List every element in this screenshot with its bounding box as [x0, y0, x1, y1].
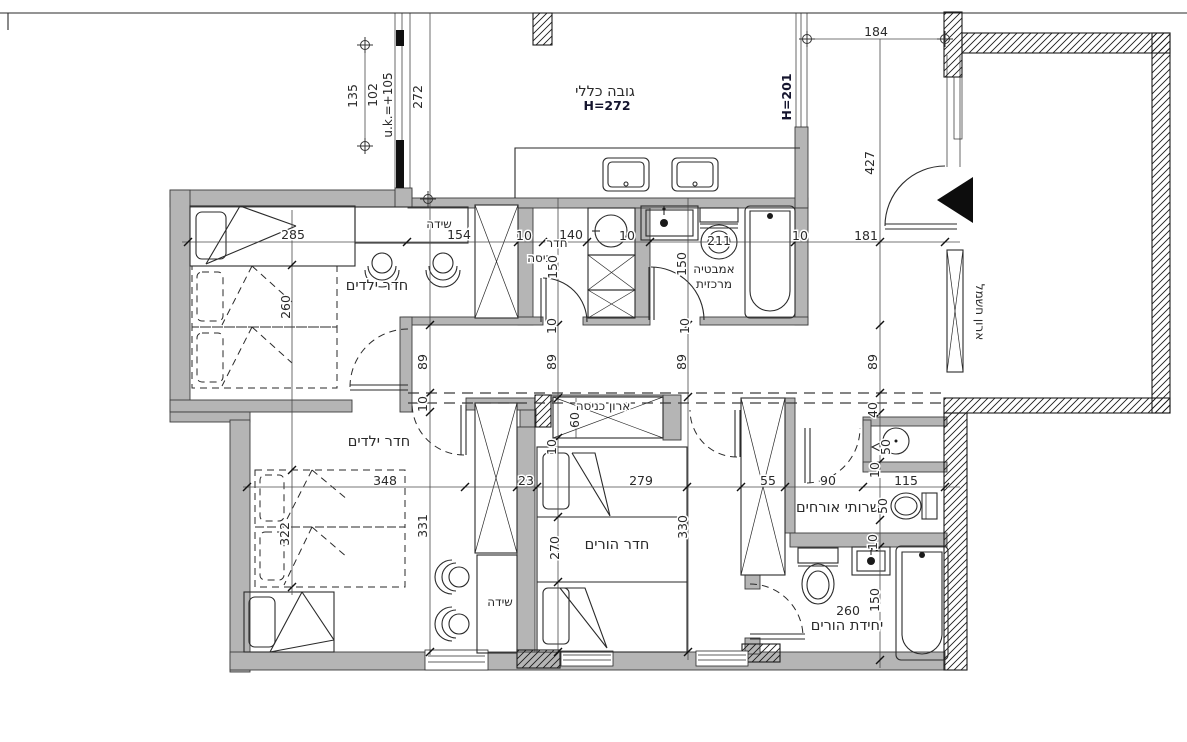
dim-23: 23: [518, 473, 534, 488]
laundry-cabinet: [588, 255, 635, 318]
label-entry-closet: ארון כניסה: [576, 399, 631, 413]
label-parents-room: חדר הורים: [585, 537, 650, 553]
door-ensuite: [750, 584, 805, 639]
window-right: [796, 13, 807, 127]
dim-181: 181: [854, 228, 878, 243]
ensuite-bathtub: [896, 546, 948, 660]
dim-89-a: 89: [415, 354, 430, 370]
dim-285: 285: [281, 227, 305, 242]
dim-154: 154: [447, 227, 471, 242]
door-laundry: [541, 278, 587, 322]
window-bottom-parents-1: [561, 651, 613, 666]
window-bottom-parents-2: [696, 651, 748, 666]
guest-wc-toilet: [891, 493, 937, 519]
dim-40: 40: [865, 402, 880, 418]
dim-331: 331: [415, 514, 430, 538]
label-bath-line1: אמבטיה: [693, 262, 734, 276]
window-left: [395, 13, 410, 188]
bed-kids2-solid: [244, 592, 334, 652]
wardrobe-kids1: [475, 205, 518, 318]
label-dresser-bottom: שידה: [487, 595, 513, 609]
dim-102: 102: [365, 83, 380, 107]
dim-10-f: 10: [677, 318, 692, 334]
dim-10-a: 10: [516, 228, 532, 243]
bed-kids1-dashed-1: [192, 266, 337, 327]
sheet-border: [0, 13, 1187, 30]
dim-427: 427: [862, 151, 877, 175]
door-parents: [690, 410, 740, 457]
dim-50-b: 50: [875, 498, 890, 514]
wardrobe-kids2: [475, 403, 517, 553]
label-general-height-value: H=272: [583, 98, 630, 113]
dim-90: 90: [820, 473, 836, 488]
label-kids-room-1: חדר ילדים: [346, 278, 408, 294]
dim-10-g: 10: [544, 439, 559, 455]
dim-89-c: 89: [674, 354, 689, 370]
dim-55: 55: [760, 473, 776, 488]
label-parents-unit: יחידת הורים: [811, 618, 884, 634]
label-electric-cabinet: ארון חשמל: [973, 284, 987, 340]
door-entry: [885, 166, 973, 229]
dim-150-bath: 150: [674, 252, 689, 276]
dim-60: 60: [567, 412, 582, 428]
dim-89-d: 89: [865, 354, 880, 370]
dim-150-laundry: 150: [545, 255, 560, 279]
dim-10-b: 10: [619, 228, 635, 243]
label-bath-line2: מרכזית: [696, 277, 732, 291]
dim-89-b: 89: [544, 354, 559, 370]
dim-184: 184: [864, 24, 888, 39]
dim-10-h: 10: [867, 462, 882, 478]
dim-348: 348: [373, 473, 397, 488]
bathroom-bathtub: [745, 206, 795, 318]
floor-plan-canvas: גובה כללי H=272 H=201 u.k.=+105 חדר ילדי…: [0, 0, 1187, 742]
dim-135: 135: [345, 84, 360, 108]
bed-kids1-solid: [190, 206, 355, 266]
label-window-height: H=201: [779, 73, 794, 120]
dim-115: 115: [894, 473, 918, 488]
dim-322: 322: [277, 522, 292, 546]
bed-kids1-dashed-2: [192, 327, 337, 388]
dimension-lines: [182, 13, 960, 668]
dim-140: 140: [559, 227, 583, 242]
dim-260-ensuite: 260: [836, 603, 860, 618]
dim-279: 279: [629, 473, 653, 488]
kitchen-counter: [515, 148, 800, 198]
door-kids1: [350, 329, 408, 390]
ensuite-toilet: [798, 548, 838, 604]
dim-270: 270: [547, 536, 562, 560]
label-kids-room-2: חדר ילדים: [348, 434, 410, 450]
dim-10-c: 10: [792, 228, 808, 243]
electric-cabinet-box: [947, 250, 963, 372]
label-guest-wc: שרותי אורחים: [796, 500, 880, 516]
dim-260-kids: 260: [278, 295, 293, 319]
dim-330: 330: [675, 515, 690, 539]
label-sill-level: u.k.=+105: [381, 72, 395, 137]
dim-10-d: 10: [415, 396, 430, 412]
dim-272: 272: [410, 85, 425, 109]
ensuite-sink: [852, 547, 890, 575]
dim-10-e: 10: [544, 318, 559, 334]
dim-50-a: 50: [878, 439, 893, 455]
dim-150-ensuite: 150: [867, 588, 882, 612]
entry-arrow-icon: [937, 177, 973, 223]
floor-plan: גובה כללי H=272 H=201 u.k.=+105 חדר ילדי…: [0, 0, 1187, 742]
dim-211: 211: [707, 233, 731, 248]
dim-10-i: 10: [865, 534, 880, 550]
